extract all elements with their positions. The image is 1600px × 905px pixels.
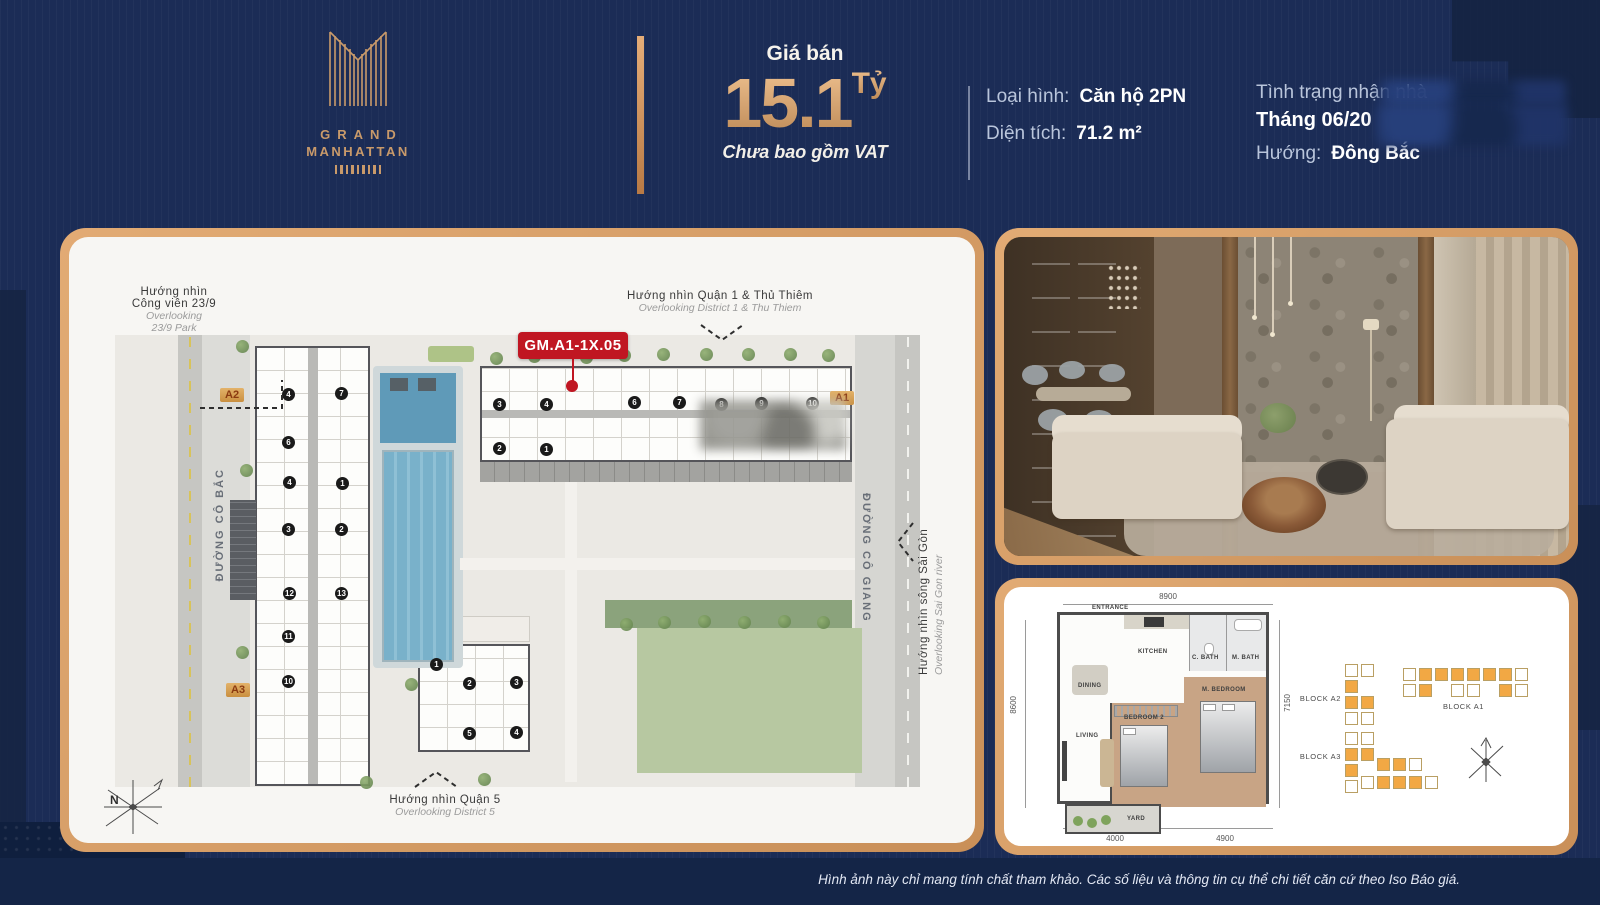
unit-marker: 6: [628, 396, 641, 409]
redacted-blur-patch: [1380, 80, 1566, 106]
direction-left-en2: 23/9 Park: [98, 322, 250, 334]
bathtub: [1234, 619, 1262, 631]
price-value: 15.1: [723, 68, 851, 138]
master-bed: [1200, 701, 1256, 773]
street-name-right: ĐƯỜNG CÔ GIANG: [860, 493, 872, 623]
photo-pendant-light: [1290, 237, 1292, 301]
keyplan-unit: [1451, 684, 1464, 697]
unit-marker: 3: [493, 398, 506, 411]
unit-marker: 2: [335, 523, 348, 536]
keyplan-unit: [1393, 758, 1406, 771]
compass-icon: N: [96, 774, 170, 842]
unit-marker: 2: [493, 442, 506, 455]
photo-lamp-shade: [1363, 319, 1379, 330]
keyplan-unit: [1345, 712, 1358, 725]
parking-structure: [230, 500, 256, 600]
keyplan-unit: [1361, 664, 1374, 677]
dimension-left: 8600: [1009, 696, 1018, 714]
keyplan-unit: [1409, 776, 1422, 789]
photo-pendant-bulb: [1270, 332, 1275, 337]
tree: [698, 615, 711, 628]
dimension-line: [1279, 620, 1280, 808]
direction-label-top: Hướng nhìn Quận 1 & Thủ Thiêm Overlookin…: [560, 290, 880, 314]
direction-value: Đông Bắc: [1331, 143, 1420, 164]
stove: [1144, 617, 1164, 627]
keyplan-unit: [1345, 764, 1358, 777]
gold-divider-bar: [637, 36, 644, 194]
bath-divider-wall: [1226, 615, 1227, 671]
site-plan-card: ĐƯỜNG CÔ BẮC ĐƯỜNG CÔ GIANG 4 7 6 4 1 3 …: [60, 228, 984, 852]
m-bath-label: M. BATH: [1232, 655, 1259, 661]
direction-right-en: Overlooking Sai Gon river: [933, 480, 945, 675]
keyplan-unit: [1499, 684, 1512, 697]
tree: [817, 616, 830, 629]
tree: [236, 646, 249, 659]
unit-marker: 12: [283, 587, 296, 600]
block-a2-label: BLOCK A2: [1293, 694, 1341, 703]
kitchen-label: KITCHEN: [1138, 649, 1167, 655]
direction-label-right: Hướng nhìn sông Sài Gòn Overlooking Sai …: [918, 480, 945, 675]
arrow-left-icon: [894, 520, 916, 564]
keyplan-unit: [1403, 684, 1416, 697]
brand-name-line2: MANHATTAN: [296, 144, 420, 159]
grand-manhattan-logo: GRAND MANHATTAN: [296, 22, 420, 174]
edge-decoration-left: [0, 290, 26, 905]
photo-pendant-bulb: [1252, 315, 1257, 320]
direction-bottom-en: Overlooking District 5: [338, 806, 552, 818]
tree: [620, 618, 633, 631]
keyplan-unit: [1499, 668, 1512, 681]
pillow: [1123, 728, 1136, 735]
walkway: [460, 558, 855, 570]
specs-divider-line: [968, 86, 970, 180]
tree: [784, 348, 797, 361]
unit-marker: 4: [540, 398, 553, 411]
tree: [236, 340, 249, 353]
tree: [478, 773, 491, 786]
m-bedroom-label: M. BEDROOM: [1202, 687, 1246, 693]
area-value: 71.2 m²: [1076, 123, 1141, 144]
dimension-bottom-right: 4900: [1177, 834, 1273, 843]
keyplan-unit: [1467, 684, 1480, 697]
area-label: Diện tích:: [986, 123, 1066, 144]
yard-plant: [1073, 816, 1083, 826]
dimension-right: 7150: [1283, 694, 1292, 712]
redacted-blur-patch: [1376, 104, 1568, 146]
keyplan-unit: [1467, 668, 1480, 681]
unit-marker: 10: [282, 675, 295, 688]
price-label: Giá bán: [655, 42, 955, 66]
spec-direction: Hướng:Đông Bắc: [1256, 143, 1427, 165]
pool-platform: [418, 378, 436, 391]
dimension-line: [1025, 620, 1026, 808]
logo-bars-decoration: [296, 165, 420, 174]
unit-marker: 1: [430, 658, 443, 671]
spec-type: Loại hình:Căn hộ 2PN: [986, 86, 1186, 108]
pool-platform: [390, 378, 408, 391]
pillow: [1203, 704, 1216, 711]
yard-plant: [1087, 818, 1097, 828]
block-a3-label: BLOCK A3: [1293, 752, 1341, 761]
direction-bottom-vi: Hướng nhìn Quận 5: [338, 794, 552, 806]
photo-dining-chair: [1099, 364, 1125, 382]
keyplan-unit: [1345, 780, 1358, 793]
photo-sofa-right: [1386, 419, 1569, 529]
yard-zone: YARD: [1065, 804, 1161, 834]
dimension-bottom-left: 4000: [1067, 834, 1163, 843]
direction-left-en1: Overlooking: [98, 310, 250, 322]
direction-label-left: Hướng nhìn Công viên 23/9 Overlooking 23…: [98, 286, 250, 334]
photo-dining-chair: [1059, 361, 1085, 379]
walkway: [565, 482, 577, 782]
arrow-down-icon: [698, 322, 746, 344]
block-badge-a3: A3: [226, 683, 250, 697]
photo-pendant-bulb: [1288, 301, 1293, 306]
tree: [490, 352, 503, 365]
block-a1-label: BLOCK A1: [1443, 702, 1484, 711]
yard-plant: [1101, 815, 1111, 825]
direction-right-vi: Hướng nhìn sông Sài Gòn: [918, 480, 930, 675]
green-band: [605, 600, 852, 628]
photo-pendant-light: [1254, 237, 1256, 315]
entrance-label: ENTRANCE: [1092, 605, 1129, 611]
pillow: [1222, 704, 1235, 711]
photo-dining-chair: [1022, 365, 1048, 385]
tv-console: [1062, 741, 1067, 781]
unit-location-dot: [566, 380, 578, 392]
unit-marker: 11: [282, 630, 295, 643]
interior-photo-card: [995, 228, 1578, 565]
keyplan-compass-icon: [1463, 736, 1509, 786]
keyplan-unit: [1377, 758, 1390, 771]
living-label: LIVING: [1076, 733, 1098, 739]
apartment-floor-plan: ENTRANCE KITCHEN C. BATH M. BATH DINING …: [1057, 612, 1269, 804]
keyplan-unit: [1361, 696, 1374, 709]
direction-label-bottom: Hướng nhìn Quận 5 Overlooking District 5: [338, 794, 552, 818]
toilet: [1204, 643, 1214, 655]
direction-label: Hướng:: [1256, 143, 1321, 164]
footer-bar: Hình ảnh này chỉ mang tính chất tham khả…: [0, 858, 1600, 905]
building-corridor: [308, 348, 318, 784]
direction-left-vi1: Hướng nhìn: [98, 286, 250, 298]
keyplan-unit: [1419, 668, 1432, 681]
keyplan-unit: [1345, 732, 1358, 745]
unit-marker: 5: [463, 727, 476, 740]
unit-marker: 7: [673, 396, 686, 409]
keyplan-unit: [1361, 732, 1374, 745]
tree: [658, 616, 671, 629]
tree: [738, 616, 751, 629]
disclaimer-text: Hình ảnh này chỉ mang tính chất tham khả…: [818, 872, 1460, 887]
photo-plant: [1260, 403, 1296, 433]
keyplan-unit: [1377, 776, 1390, 789]
price-unit: Tỷ: [852, 67, 887, 101]
spec-area: Diện tích:71.2 m²: [986, 123, 1186, 145]
keyplan-unit: [1425, 776, 1438, 789]
photo-chandelier: [1107, 263, 1141, 309]
unit-marker: 2: [463, 677, 476, 690]
keyplan-unit: [1515, 684, 1528, 697]
keyplan-unit: [1345, 696, 1358, 709]
photo-dining-table: [1036, 387, 1131, 401]
tree: [700, 348, 713, 361]
keyplan-unit: [1483, 668, 1496, 681]
photo-coffee-table-small: [1316, 459, 1368, 495]
keyplan-unit: [1435, 668, 1448, 681]
keyplan-unit: [1361, 712, 1374, 725]
tree: [778, 615, 791, 628]
type-label: Loại hình:: [986, 86, 1069, 107]
tree: [822, 349, 835, 362]
photo-pendant-light: [1272, 237, 1274, 332]
keyplan-unit: [1345, 748, 1358, 761]
lap-pool: [382, 450, 454, 662]
photo-floor-lamp: [1370, 329, 1372, 421]
photo-sofa-left: [1052, 433, 1242, 519]
compass-north-label: N: [110, 793, 119, 807]
keyplan-unit: [1409, 758, 1422, 771]
price-vat-note: Chưa bao gồm VAT: [655, 142, 955, 163]
direction-top-en: Overlooking District 1 & Thu Thiem: [560, 302, 880, 314]
plan-blur-patch: [700, 400, 846, 450]
bedroom2-label: BEDROOM 2: [1124, 715, 1164, 721]
keyplan-unit: [1361, 776, 1374, 789]
balcony-strip: [480, 462, 852, 482]
unit-marker: 6: [282, 436, 295, 449]
keyplan-unit: [1345, 680, 1358, 693]
unit-marker: 3: [282, 523, 295, 536]
keyplan-unit: [1515, 668, 1528, 681]
c-bath-label: C. BATH: [1192, 655, 1219, 661]
floor-plan-card: 8900 8600 7150 4000 4900 ENTRANCE KITCHE…: [995, 578, 1578, 855]
price-block: Giá bán 15.1Tỷ Chưa bao gồm VAT: [655, 42, 955, 163]
direction-left-vi2: Công viên 23/9: [98, 298, 250, 310]
green-lawn: [637, 628, 862, 773]
arrow-up-icon: [412, 768, 460, 790]
green-patch: [428, 346, 474, 362]
unit-marker: 4: [283, 476, 296, 489]
dining-table: [1072, 665, 1108, 695]
logo-m-tower-icon: [327, 22, 389, 116]
interior-photo: [1004, 237, 1569, 556]
keyplan-unit: [1451, 668, 1464, 681]
type-value: Căn hộ 2PN: [1079, 86, 1186, 107]
keyplan-unit: [1419, 684, 1432, 697]
dimension-top: 8900: [1063, 592, 1273, 601]
tree: [240, 464, 253, 477]
yard-label: YARD: [1127, 816, 1145, 822]
unit-marker: 1: [336, 477, 349, 490]
unit-marker: 4: [510, 726, 523, 739]
unit-marker: 1: [540, 443, 553, 456]
highlighted-unit-badge: GM.A1-1X.05: [518, 332, 628, 359]
keyplan-unit: [1361, 748, 1374, 761]
unit-marker: 7: [335, 387, 348, 400]
direction-top-vi: Hướng nhìn Quận 1 & Thủ Thiêm: [560, 290, 880, 302]
keyplan-unit: [1403, 668, 1416, 681]
specs-column-1: Loại hình:Căn hộ 2PN Diện tích:71.2 m²: [986, 86, 1186, 160]
tree: [360, 776, 373, 789]
tree: [657, 348, 670, 361]
unit-marker: 3: [510, 676, 523, 689]
keyplan-unit: [1345, 664, 1358, 677]
street-name-left: ĐƯỜNG CÔ BẮC: [214, 468, 226, 581]
tree: [742, 348, 755, 361]
arrow-corner-icon: [196, 376, 288, 412]
keyplan-unit: [1393, 776, 1406, 789]
unit-marker: 13: [335, 587, 348, 600]
brand-name-line1: GRAND: [296, 127, 420, 142]
sofa: [1100, 739, 1114, 787]
dining-label: DINING: [1078, 683, 1101, 689]
photo-coffee-table-large: [1242, 477, 1326, 533]
tree: [405, 678, 418, 691]
